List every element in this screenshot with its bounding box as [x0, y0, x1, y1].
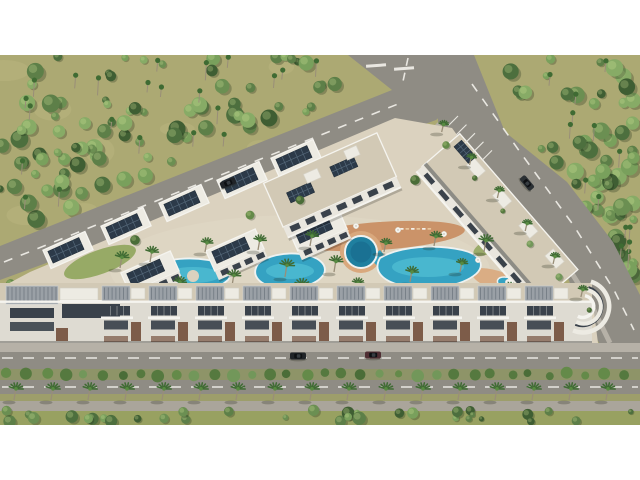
- median-bush: [561, 367, 573, 379]
- median-bush: [355, 369, 366, 380]
- lower-windows: [339, 321, 363, 330]
- sun-lounger: [422, 228, 426, 230]
- median-bush: [98, 370, 108, 380]
- median-bush: [470, 369, 481, 380]
- balcony-slab: [383, 317, 415, 320]
- median-bush: [119, 371, 128, 380]
- balcony-slab: [148, 317, 180, 320]
- letterbox-top: [0, 0, 640, 55]
- pool-umbrella: [475, 257, 480, 262]
- palm-verge: [0, 394, 640, 401]
- roof-box: [225, 288, 239, 299]
- median-bush: [448, 369, 459, 380]
- round-pool-deep: [351, 242, 372, 263]
- lower-windows: [104, 321, 128, 330]
- brick-pier: [554, 322, 564, 341]
- median-bush: [42, 368, 53, 379]
- median-bush: [432, 370, 442, 380]
- roof-box: [131, 288, 145, 299]
- median-bush: [248, 371, 256, 379]
- median-bush: [411, 370, 424, 383]
- brick-pier: [225, 322, 235, 341]
- south-sidewalk: [0, 343, 640, 352]
- row-parapet-line: [0, 301, 592, 303]
- pool-island: [187, 270, 199, 282]
- median-bush: [189, 370, 200, 381]
- median-bush: [60, 369, 72, 381]
- sun-lounger: [417, 228, 421, 230]
- median-bush: [209, 369, 220, 380]
- lower-windows: [480, 321, 504, 330]
- lower-windows: [151, 321, 175, 330]
- render-content: [0, 51, 640, 430]
- letterbox-bottom: [0, 425, 640, 480]
- lower-windows: [433, 321, 457, 330]
- balcony-slab: [242, 317, 274, 320]
- car-bottom-road-black: [289, 353, 307, 362]
- south-road-upper: [0, 352, 640, 369]
- car-bottom-road-maroon: [364, 352, 382, 361]
- median-bush: [151, 370, 164, 383]
- sun-lounger: [411, 228, 415, 230]
- median-bush: [20, 368, 32, 380]
- balcony-slab: [477, 317, 509, 320]
- brick-pier: [460, 322, 470, 341]
- aerial-render-canvas: [0, 0, 640, 480]
- balcony-slab: [289, 317, 321, 320]
- median-bush: [619, 370, 629, 380]
- median-bush: [302, 370, 313, 381]
- brick-pier: [131, 322, 141, 341]
- brick-pier: [319, 322, 329, 341]
- median-bush: [598, 368, 610, 380]
- balcony-slab: [195, 317, 227, 320]
- lower-windows: [245, 321, 269, 330]
- median-bush: [509, 370, 518, 379]
- lower-windows: [292, 321, 316, 330]
- brick-section: [56, 328, 68, 341]
- median-bush: [282, 370, 291, 379]
- median-bush: [524, 369, 532, 377]
- median-bush: [395, 370, 402, 377]
- pool-umbrella: [353, 223, 358, 228]
- median-bush: [227, 369, 240, 382]
- brick-pier: [272, 322, 282, 341]
- south-townhouse-row: [0, 283, 592, 344]
- roof-box: [460, 288, 474, 299]
- roof-box: [366, 288, 380, 299]
- median-bush: [485, 368, 495, 378]
- median-strip: [0, 369, 640, 380]
- balcony-slab: [430, 317, 462, 320]
- median-bush: [581, 372, 589, 380]
- sun-lounger: [406, 228, 410, 230]
- architectural-render: [0, 0, 640, 480]
- brick-pier: [178, 322, 188, 341]
- roof-box: [178, 288, 192, 299]
- median-bush: [137, 369, 146, 378]
- pool-umbrella: [395, 227, 400, 232]
- balcony-slab: [524, 317, 556, 320]
- lower-windows: [527, 321, 551, 330]
- brick-pier: [366, 322, 376, 341]
- median-bush: [546, 372, 554, 380]
- median-bush: [375, 370, 383, 378]
- roof-box: [554, 288, 568, 299]
- sun-lounger: [428, 228, 432, 230]
- median-bush: [1, 368, 11, 378]
- lower-windows: [198, 321, 222, 330]
- median-bush: [79, 370, 87, 378]
- roof-box: [319, 288, 333, 299]
- median-bush: [336, 368, 347, 379]
- brick-pier: [507, 322, 517, 341]
- median-bush: [172, 370, 182, 380]
- lower-windows: [386, 321, 410, 330]
- roof-box: [272, 288, 286, 299]
- median-bush: [321, 368, 330, 377]
- balcony-slab: [336, 317, 368, 320]
- brick-pier: [413, 322, 423, 341]
- median-bush: [264, 369, 276, 381]
- roof-box: [413, 288, 427, 299]
- roof-box: [507, 288, 521, 299]
- balcony-slab: [101, 317, 133, 320]
